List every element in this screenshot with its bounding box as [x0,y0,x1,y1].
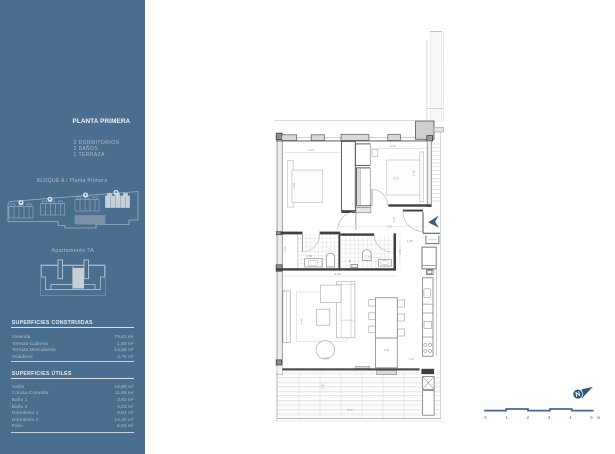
svg-text:5.38: 5.38 [335,272,341,276]
svg-text:3.30: 3.30 [390,144,396,148]
svg-text:1.20: 1.20 [409,357,415,361]
svg-text:4: 4 [569,415,572,420]
svg-text:1.60: 1.60 [283,246,287,252]
svg-text:5: 5 [590,415,593,420]
svg-text:4.90: 4.90 [299,318,303,324]
svg-text:m: m [597,415,601,420]
svg-text:3: 3 [548,415,551,420]
svg-text:1.10: 1.10 [392,216,396,222]
svg-text:1.28: 1.28 [407,239,413,243]
svg-text:2.30: 2.30 [320,383,324,389]
svg-text:8.35: 8.35 [347,408,353,412]
svg-text:2.60: 2.60 [384,348,390,352]
svg-text:1: 1 [505,415,508,420]
svg-text:2.85: 2.85 [306,254,312,258]
svg-text:4.20: 4.20 [292,183,296,189]
svg-text:0: 0 [484,415,487,420]
svg-text:2.45: 2.45 [365,254,371,258]
svg-text:2.46: 2.46 [308,148,314,152]
svg-text:2.70: 2.70 [393,176,399,180]
svg-text:3.00: 3.00 [387,225,393,229]
svg-text:4.40: 4.40 [323,356,329,360]
svg-text:3.18: 3.18 [412,170,416,176]
svg-text:1.50: 1.50 [398,249,402,255]
svg-text:2: 2 [527,415,530,420]
